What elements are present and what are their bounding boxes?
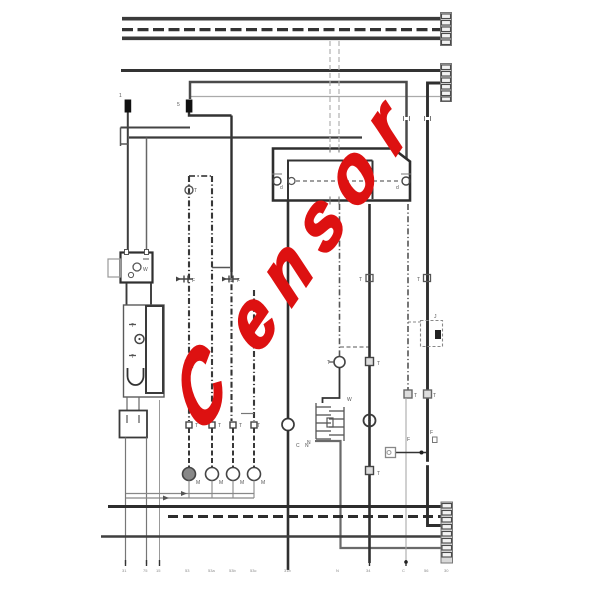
svg-text:T: T bbox=[377, 361, 380, 367]
svg-text:53c: 53c bbox=[250, 568, 256, 573]
svg-text:31: 31 bbox=[122, 568, 127, 573]
svg-text:W: W bbox=[143, 267, 148, 273]
svg-text:T: T bbox=[257, 423, 260, 429]
svg-text:T: T bbox=[194, 188, 197, 194]
svg-text:F: F bbox=[430, 430, 433, 436]
svg-text:31b: 31b bbox=[284, 568, 291, 573]
svg-text:T: T bbox=[131, 323, 134, 329]
svg-text:T: T bbox=[417, 277, 420, 283]
svg-text:56: 56 bbox=[424, 568, 429, 573]
svg-text:15: 15 bbox=[156, 568, 161, 573]
svg-text:T: T bbox=[359, 277, 362, 283]
svg-text:M: M bbox=[261, 480, 265, 486]
svg-text:75: 75 bbox=[143, 568, 148, 573]
svg-text:30: 30 bbox=[444, 568, 449, 573]
svg-text:C: C bbox=[296, 443, 300, 449]
svg-text:T: T bbox=[377, 471, 380, 477]
svg-text:N: N bbox=[307, 440, 311, 446]
svg-text:d: d bbox=[396, 185, 399, 191]
svg-text:34: 34 bbox=[366, 568, 371, 573]
svg-text:M: M bbox=[219, 480, 223, 486]
svg-text:53a: 53a bbox=[208, 568, 215, 573]
svg-text:M: M bbox=[196, 480, 200, 486]
svg-text:W: W bbox=[347, 397, 352, 403]
svg-text:M: M bbox=[240, 480, 244, 486]
svg-text:C: C bbox=[402, 568, 405, 573]
svg-text:F: F bbox=[407, 437, 410, 443]
svg-text:1: 1 bbox=[119, 93, 122, 99]
svg-text:d: d bbox=[280, 185, 283, 191]
svg-text:T: T bbox=[414, 393, 417, 399]
svg-text:53b: 53b bbox=[229, 568, 236, 573]
svg-text:F: F bbox=[192, 278, 195, 284]
svg-text:5: 5 bbox=[177, 102, 180, 108]
svg-text:T: T bbox=[433, 393, 436, 399]
svg-text:53: 53 bbox=[185, 568, 190, 573]
svg-text:T: T bbox=[239, 423, 242, 429]
svg-text:N: N bbox=[336, 568, 339, 573]
svg-text:T: T bbox=[131, 354, 134, 360]
svg-text:T: T bbox=[327, 360, 330, 366]
